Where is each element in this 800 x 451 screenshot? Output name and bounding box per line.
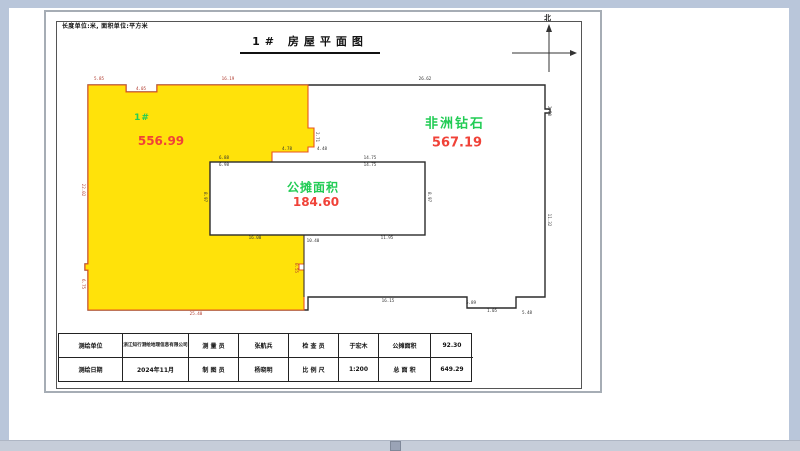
- titleblock-cell-r1c6: 总 面 积: [379, 358, 431, 382]
- dimension-label: 2.71: [315, 132, 320, 142]
- region-label-shared: 公摊面积: [287, 179, 339, 196]
- dimension-label: 6.88: [219, 156, 229, 161]
- floor-plan-drawing: [0, 0, 800, 450]
- titleblock-cell-r1c1: 2024年11月: [123, 358, 189, 382]
- dimension-label: 10.40: [307, 239, 320, 244]
- dimension-label: 0.55: [294, 263, 299, 273]
- titleblock-cell-r0c6: 公摊面积: [379, 334, 431, 358]
- titleblock-cell-r0c3: 张航兵: [239, 334, 289, 358]
- dimension-label: 14.75: [364, 156, 377, 161]
- titleblock-cell-r0c0: 测绘单位: [59, 334, 123, 358]
- dimension-label: 1.05: [487, 309, 497, 314]
- dimension-label: 4.48: [317, 147, 327, 152]
- dimension-label: 5.48: [522, 311, 532, 316]
- region-area-unit1: 556.99: [138, 134, 184, 148]
- dimension-label: 6.75: [81, 279, 86, 289]
- titleblock-cell-r0c7: 92.30: [431, 334, 473, 358]
- titleblock-cell-r1c3: 杨晓明: [239, 358, 289, 382]
- region-area-african-diamond: 567.19: [432, 136, 482, 151]
- dimension-label: 16.00: [249, 236, 262, 241]
- dimension-label: 11.32: [547, 214, 552, 227]
- north-arrow: [512, 24, 577, 72]
- titleblock-cell-r1c7: 649.29: [431, 358, 473, 382]
- north-label: 北: [544, 13, 551, 23]
- dimension-label: 4.78: [282, 147, 292, 152]
- dimension-label: 16.19: [222, 77, 235, 82]
- region-label-unit1: 1#: [134, 113, 150, 123]
- titleblock-cell-r0c2: 测 量 员: [189, 334, 239, 358]
- region-label-african-diamond: 非洲钻石: [425, 113, 485, 132]
- titleblock-cell-r1c2: 制 图 员: [189, 358, 239, 382]
- dimension-label: 4.05: [136, 87, 146, 92]
- dimension-label: 26.62: [419, 77, 432, 82]
- dimension-label: 16.15: [382, 299, 395, 304]
- titleblock-cell-r1c4: 比 例 尺: [289, 358, 339, 382]
- titleblock-cell-r1c5: 1:200: [339, 358, 379, 382]
- dimension-label: 8.97: [427, 192, 432, 202]
- dimension-label: 14.75: [364, 163, 377, 168]
- titleblock-cell-r0c5: 于宏木: [339, 334, 379, 358]
- dimension-label: 8.97: [203, 192, 208, 202]
- titleblock-cell-r0c4: 检 查 员: [289, 334, 339, 358]
- dimension-label: 2.50: [547, 106, 552, 116]
- dimension-label: 11.95: [381, 236, 394, 241]
- dimension-label: 5.85: [94, 77, 104, 82]
- dimension-label: 22.02: [81, 184, 86, 197]
- region-area-shared: 184.60: [293, 195, 339, 209]
- dimension-label: 5.89: [466, 301, 476, 306]
- titleblock-cell-r1c0: 测绘日期: [59, 358, 123, 382]
- dimension-label: 25.40: [190, 312, 203, 317]
- titleblock-cell-r0c1: 浙江知行测绘地理信息有限公司: [123, 334, 189, 358]
- dimension-label: 6.98: [219, 163, 229, 168]
- title-block-table: 测绘单位浙江知行测绘地理信息有限公司测 量 员张航兵检 查 员于宏木公摊面积92…: [58, 333, 472, 382]
